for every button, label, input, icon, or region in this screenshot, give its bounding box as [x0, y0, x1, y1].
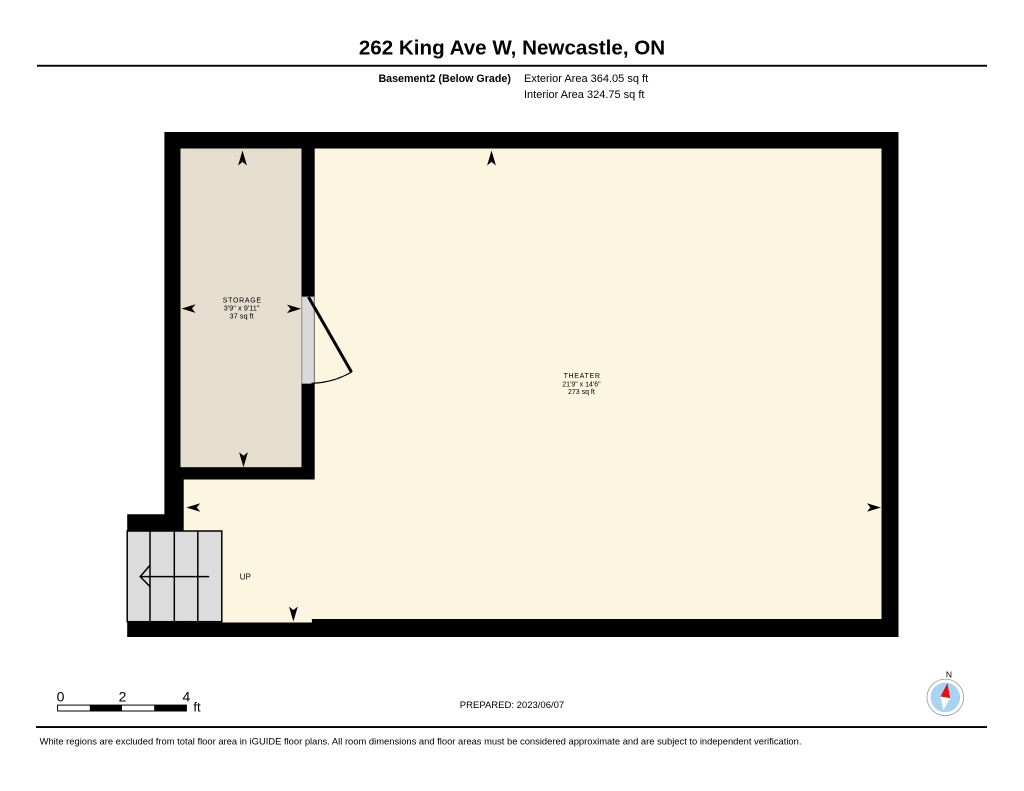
svg-text:N: N — [946, 670, 952, 680]
svg-text:Interior Area 324.75 sq ft: Interior Area 324.75 sq ft — [524, 89, 644, 101]
svg-text:4: 4 — [183, 689, 191, 705]
svg-text:ft: ft — [193, 700, 201, 715]
svg-text:THEATER: THEATER — [564, 373, 601, 380]
svg-text:UP: UP — [240, 573, 251, 582]
svg-text:Basement2 (Below Grade): Basement2 (Below Grade) — [378, 73, 511, 85]
svg-text:273 sq ft: 273 sq ft — [568, 389, 595, 396]
svg-text:0: 0 — [57, 689, 65, 705]
svg-text:White regions are excluded fro: White regions are excluded from total fl… — [40, 736, 802, 747]
svg-text:37 sq ft: 37 sq ft — [229, 311, 253, 320]
svg-text:Exterior Area 364.05 sq ft: Exterior Area 364.05 sq ft — [524, 73, 648, 85]
svg-text:PREPARED: 2023/06/07: PREPARED: 2023/06/07 — [460, 700, 564, 711]
svg-text:262 King Ave W, Newcastle, ON: 262 King Ave W, Newcastle, ON — [359, 37, 665, 60]
svg-text:21'9" x 14'6": 21'9" x 14'6" — [562, 381, 601, 388]
svg-text:2: 2 — [119, 689, 127, 705]
